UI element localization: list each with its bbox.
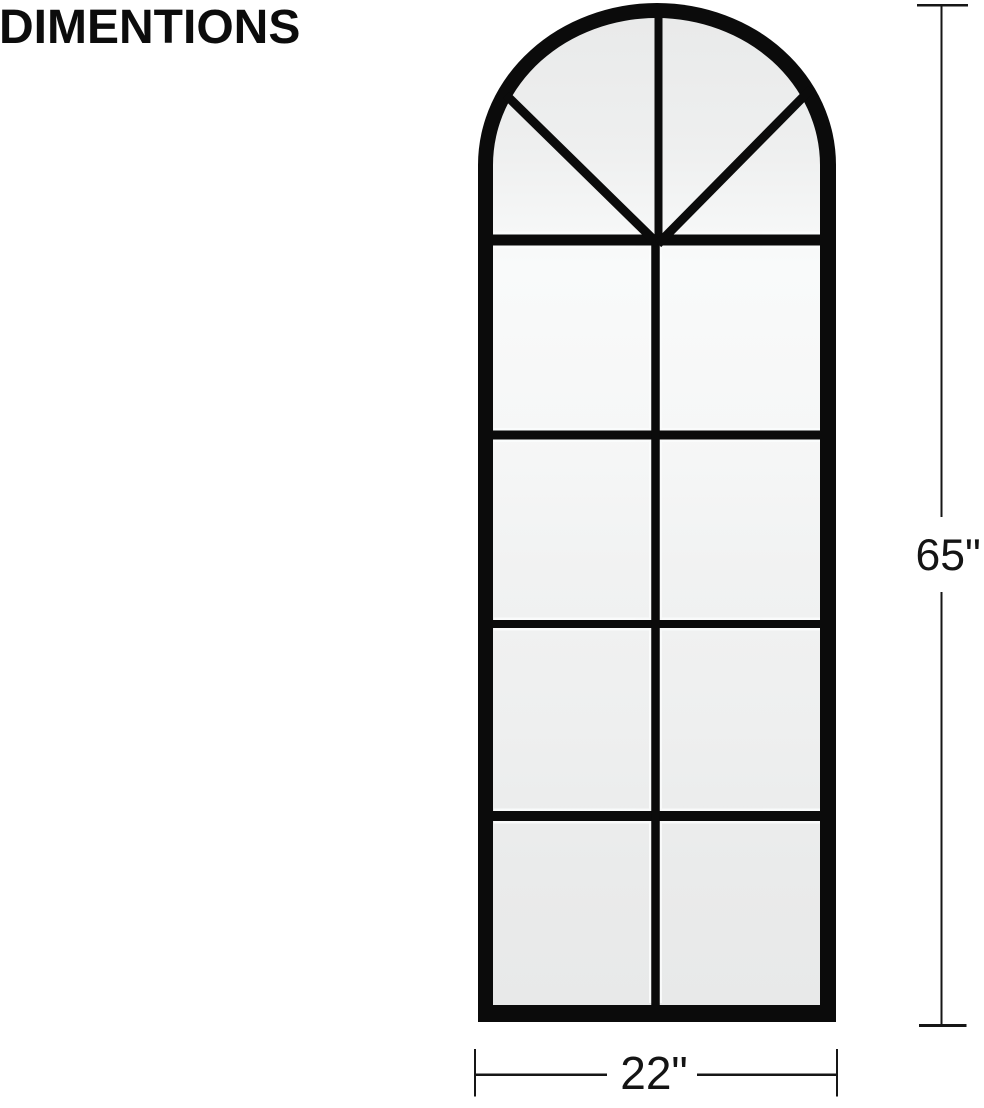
svg-text:DIMENTIONS: DIMENTIONS xyxy=(0,1,300,54)
svg-text:65": 65" xyxy=(916,531,981,580)
svg-text:22": 22" xyxy=(620,1047,688,1099)
